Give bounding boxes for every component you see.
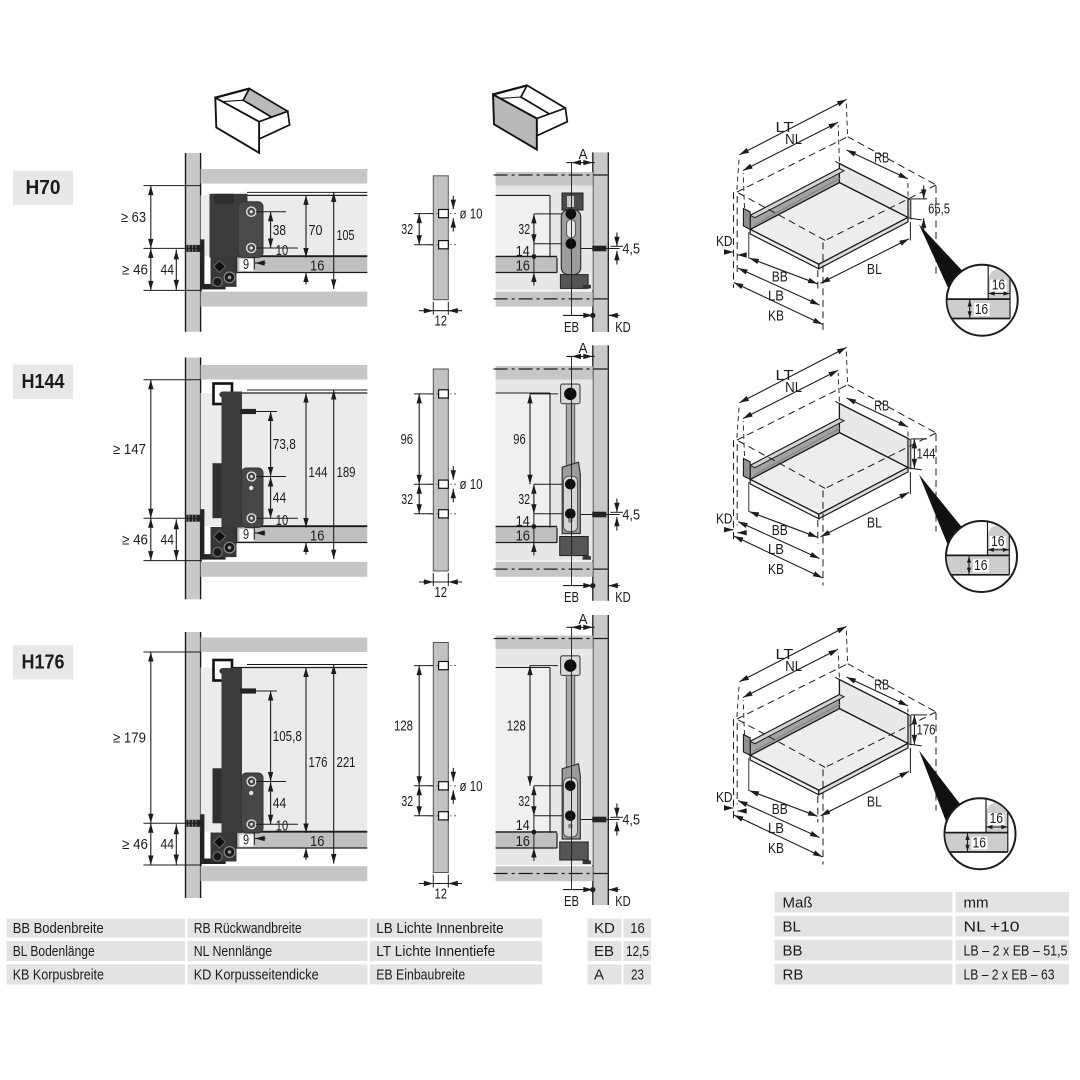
svg-text:LT Lichte Innentiefe: LT Lichte Innentiefe <box>376 943 495 960</box>
svg-text:≥ 46: ≥ 46 <box>122 837 148 853</box>
svg-text:128: 128 <box>507 719 526 735</box>
svg-text:12: 12 <box>435 887 448 903</box>
svg-text:BB: BB <box>772 270 788 286</box>
svg-text:4,5: 4,5 <box>622 508 640 524</box>
svg-text:16: 16 <box>973 835 987 851</box>
svg-text:32: 32 <box>518 222 530 238</box>
svg-text:EB: EB <box>594 943 614 960</box>
svg-text:RB Rückwandbreite: RB Rückwandbreite <box>194 920 302 937</box>
svg-text:BB: BB <box>772 523 788 539</box>
svg-text:96: 96 <box>513 432 526 448</box>
svg-text:KD: KD <box>594 920 615 937</box>
svg-text:H70: H70 <box>26 176 61 199</box>
svg-text:BB: BB <box>772 802 788 818</box>
svg-text:32: 32 <box>401 794 413 810</box>
svg-text:32: 32 <box>518 492 530 508</box>
svg-text:RB: RB <box>783 967 804 984</box>
svg-text:NL: NL <box>785 659 802 675</box>
svg-text:ø 10: ø 10 <box>460 477 483 493</box>
svg-text:44: 44 <box>161 262 175 278</box>
svg-text:KD: KD <box>615 590 631 606</box>
svg-text:H176: H176 <box>22 651 65 674</box>
svg-text:BL Bodenlänge: BL Bodenlänge <box>13 943 95 960</box>
svg-text:16: 16 <box>992 278 1006 294</box>
svg-text:144: 144 <box>917 446 936 462</box>
svg-text:≥ 46: ≥ 46 <box>122 532 148 548</box>
svg-text:14: 14 <box>516 818 530 834</box>
svg-text:144: 144 <box>309 465 328 481</box>
svg-text:≥ 63: ≥ 63 <box>121 210 146 226</box>
svg-text:KB: KB <box>768 562 784 578</box>
svg-text:NL +10: NL +10 <box>964 919 1020 936</box>
svg-text:4,5: 4,5 <box>622 242 640 258</box>
svg-text:≥ 147: ≥ 147 <box>113 442 146 458</box>
svg-text:9: 9 <box>243 833 249 849</box>
svg-text:Maß: Maß <box>783 895 813 912</box>
svg-text:44: 44 <box>273 796 287 812</box>
svg-text:BL: BL <box>867 795 882 811</box>
svg-text:38: 38 <box>273 223 286 239</box>
svg-text:16: 16 <box>974 558 988 574</box>
svg-text:A: A <box>579 341 588 357</box>
svg-text:LB Lichte Innenbreite: LB Lichte Innenbreite <box>376 920 504 937</box>
svg-text:KB: KB <box>768 841 784 857</box>
svg-text:128: 128 <box>394 719 413 735</box>
svg-text:96: 96 <box>401 432 414 448</box>
svg-text:32: 32 <box>401 492 413 508</box>
svg-text:EB: EB <box>564 894 579 910</box>
svg-text:16: 16 <box>975 302 989 318</box>
svg-text:44: 44 <box>161 837 175 853</box>
svg-text:KB: KB <box>768 309 784 325</box>
svg-text:10: 10 <box>276 513 288 529</box>
svg-text:16: 16 <box>991 534 1005 550</box>
svg-text:KD: KD <box>716 790 733 806</box>
svg-text:KD Korpusseitendicke: KD Korpusseitendicke <box>194 967 319 984</box>
svg-text:16: 16 <box>516 834 530 850</box>
svg-text:mm: mm <box>964 895 989 912</box>
svg-text:70: 70 <box>309 223 323 239</box>
svg-text:23: 23 <box>631 967 644 984</box>
svg-text:189: 189 <box>337 465 356 481</box>
svg-text:4,5: 4,5 <box>622 813 640 829</box>
svg-text:9: 9 <box>243 257 249 273</box>
svg-text:NL: NL <box>785 132 802 148</box>
svg-text:176: 176 <box>309 755 328 771</box>
svg-text:BL: BL <box>783 919 801 936</box>
svg-text:RB: RB <box>874 399 889 415</box>
svg-text:≥ 179: ≥ 179 <box>113 731 146 747</box>
svg-text:105: 105 <box>337 228 355 244</box>
svg-text:65,5: 65,5 <box>928 201 950 217</box>
svg-text:RB: RB <box>874 678 889 694</box>
svg-text:73,8: 73,8 <box>273 437 296 453</box>
svg-text:16: 16 <box>310 259 324 275</box>
svg-text:44: 44 <box>273 490 287 506</box>
svg-text:NL Nennlänge: NL Nennlänge <box>194 943 273 960</box>
svg-text:A: A <box>579 147 588 163</box>
svg-text:176: 176 <box>917 722 936 738</box>
svg-text:16: 16 <box>516 259 530 275</box>
svg-text:KD: KD <box>716 512 733 528</box>
svg-text:16: 16 <box>310 834 324 850</box>
svg-text:KB Korpusbreite: KB Korpusbreite <box>13 967 104 984</box>
svg-text:KD: KD <box>615 320 631 336</box>
svg-text:10: 10 <box>276 819 288 835</box>
svg-text:ø 10: ø 10 <box>460 779 483 795</box>
svg-text:12,5: 12,5 <box>626 943 649 960</box>
svg-text:KD: KD <box>716 234 733 250</box>
svg-text:12: 12 <box>435 314 448 330</box>
svg-text:EB: EB <box>564 320 579 336</box>
svg-text:32: 32 <box>401 222 413 238</box>
svg-text:EB Einbaubreite: EB Einbaubreite <box>376 967 465 984</box>
svg-text:9: 9 <box>243 527 249 543</box>
svg-text:BL: BL <box>867 516 882 532</box>
svg-text:LB – 2 x EB – 63: LB – 2 x EB – 63 <box>964 967 1055 984</box>
svg-text:RB: RB <box>874 151 889 167</box>
svg-text:32: 32 <box>518 794 530 810</box>
svg-text:EB: EB <box>564 590 579 606</box>
svg-text:BB Bodenbreite: BB Bodenbreite <box>13 920 104 937</box>
svg-text:10: 10 <box>276 243 288 259</box>
svg-text:16: 16 <box>516 529 530 545</box>
svg-text:16: 16 <box>990 811 1004 827</box>
svg-text:221: 221 <box>337 755 356 771</box>
svg-text:KD: KD <box>615 894 631 910</box>
svg-text:105,8: 105,8 <box>273 729 302 745</box>
svg-text:NL: NL <box>785 380 802 396</box>
svg-text:≥ 46: ≥ 46 <box>122 262 148 278</box>
svg-text:ø 10: ø 10 <box>460 207 483 223</box>
svg-text:A: A <box>579 612 588 628</box>
svg-text:16: 16 <box>310 529 324 545</box>
svg-text:LB – 2 x EB – 51,5: LB – 2 x EB – 51,5 <box>964 943 1068 960</box>
svg-text:A: A <box>594 967 604 984</box>
svg-text:H144: H144 <box>22 370 66 393</box>
svg-text:12: 12 <box>435 585 448 601</box>
svg-text:BL: BL <box>867 262 882 278</box>
svg-text:BB: BB <box>783 943 803 960</box>
svg-text:44: 44 <box>161 532 175 548</box>
svg-text:16: 16 <box>630 920 644 937</box>
